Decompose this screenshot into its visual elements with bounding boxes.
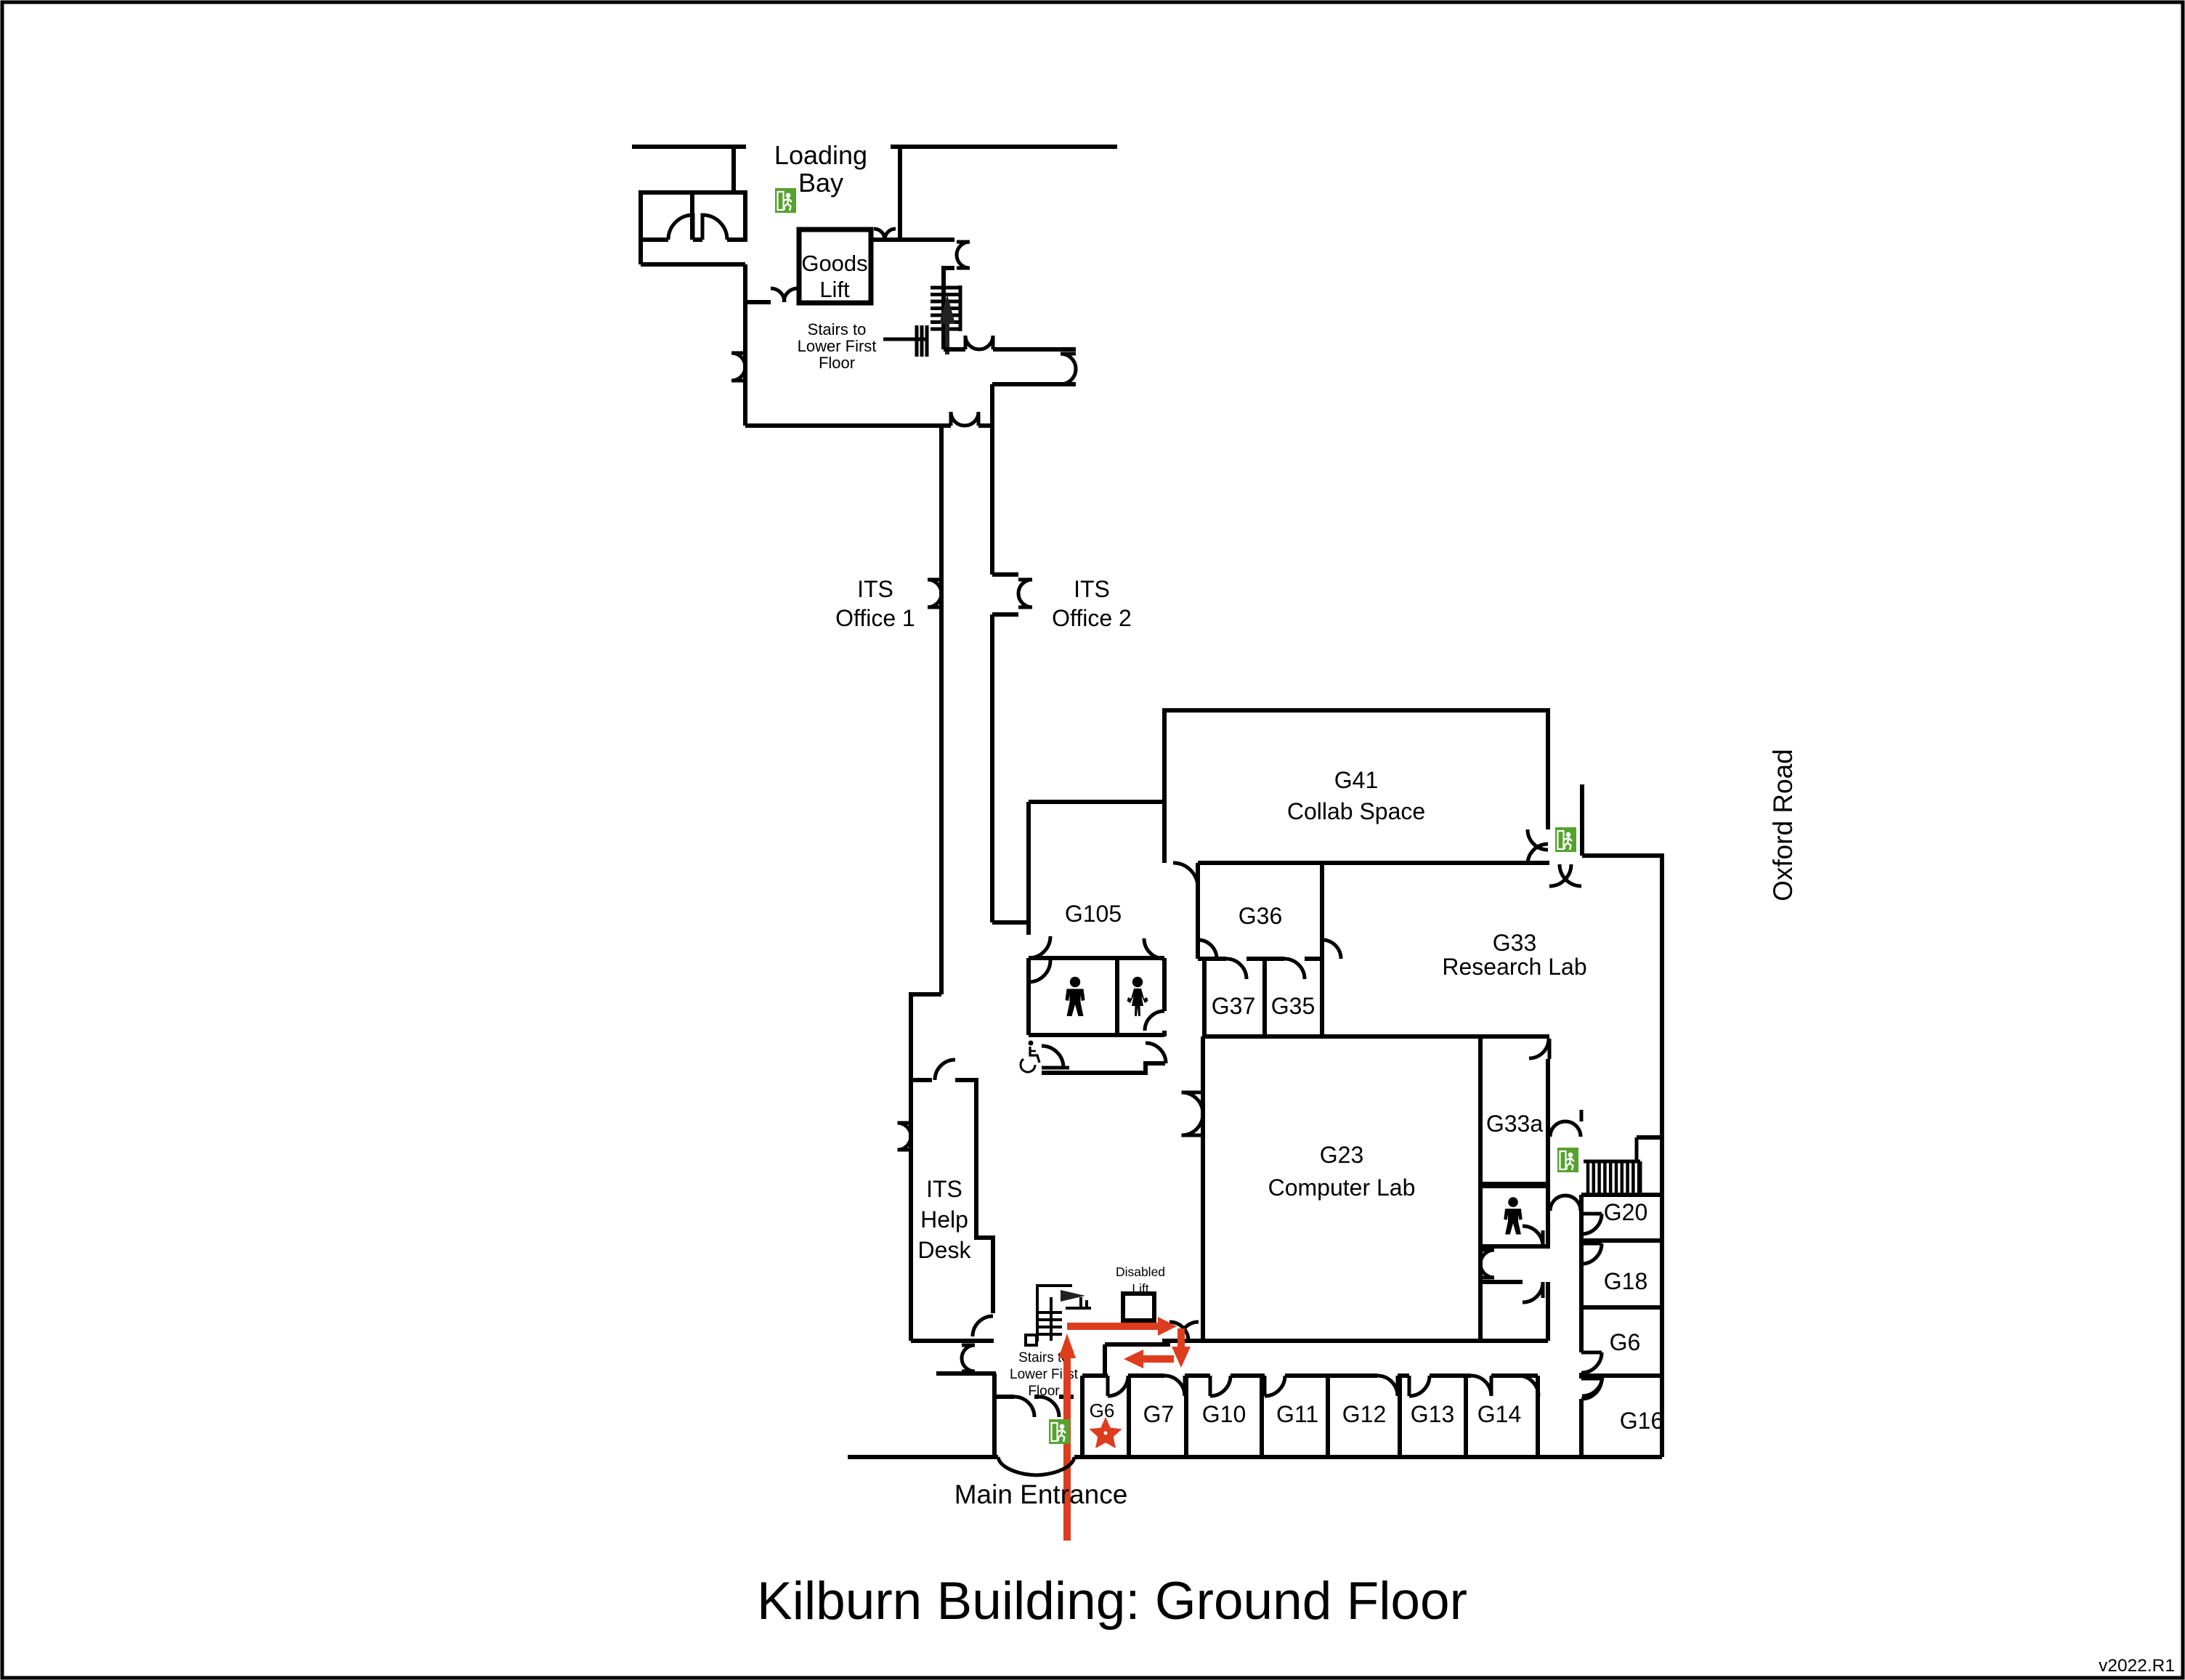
svg-text:G23: G23 (1320, 1142, 1363, 1168)
svg-text:G12: G12 (1342, 1401, 1386, 1427)
svg-text:Office 2: Office 2 (1052, 605, 1132, 631)
svg-text:G6: G6 (1090, 1400, 1115, 1421)
svg-text:Main Entrance: Main Entrance (954, 1480, 1128, 1509)
svg-text:Bay: Bay (798, 168, 843, 198)
svg-text:G33: G33 (1493, 930, 1536, 956)
svg-text:Kilburn Building: Ground Floor: Kilburn Building: Ground Floor (757, 1572, 1467, 1631)
svg-text:Help: Help (920, 1206, 968, 1233)
svg-text:Lift: Lift (819, 277, 850, 302)
svg-text:Goods: Goods (801, 251, 867, 276)
svg-text:ITS: ITS (857, 576, 893, 602)
svg-text:Computer Lab: Computer Lab (1268, 1174, 1416, 1201)
svg-text:G35: G35 (1271, 993, 1315, 1019)
svg-text:Stairs to: Stairs to (808, 320, 867, 338)
svg-text:ITS: ITS (926, 1176, 962, 1202)
svg-text:Lower First: Lower First (798, 337, 877, 355)
svg-text:G6: G6 (1610, 1329, 1641, 1355)
svg-text:Floor: Floor (819, 354, 855, 372)
svg-text:Research Lab: Research Lab (1442, 954, 1586, 980)
svg-text:G14: G14 (1477, 1401, 1521, 1427)
svg-text:G36: G36 (1239, 903, 1282, 929)
svg-text:G18: G18 (1604, 1268, 1647, 1294)
svg-text:Desk: Desk (918, 1237, 972, 1263)
svg-text:Loading: Loading (774, 140, 867, 170)
svg-text:Disabled: Disabled (1116, 1265, 1165, 1279)
svg-text:G41: G41 (1334, 767, 1378, 793)
svg-text:G16: G16 (1620, 1408, 1663, 1434)
svg-text:ITS: ITS (1074, 576, 1110, 602)
svg-text:G20: G20 (1604, 1199, 1647, 1225)
svg-text:G13: G13 (1411, 1401, 1454, 1427)
svg-text:v2022.R1: v2022.R1 (2099, 1656, 2175, 1676)
svg-text:Collab Space: Collab Space (1287, 798, 1425, 824)
svg-text:G10: G10 (1202, 1401, 1246, 1427)
svg-text:G11: G11 (1276, 1401, 1318, 1427)
svg-text:Office 1: Office 1 (835, 605, 915, 631)
svg-text:Oxford Road: Oxford Road (1768, 749, 1798, 901)
svg-text:Floor: Floor (1028, 1384, 1060, 1399)
svg-text:G7: G7 (1143, 1401, 1175, 1427)
svg-text:G37: G37 (1212, 993, 1255, 1019)
svg-text:G105: G105 (1065, 901, 1122, 927)
svg-text:G33a: G33a (1486, 1111, 1543, 1137)
